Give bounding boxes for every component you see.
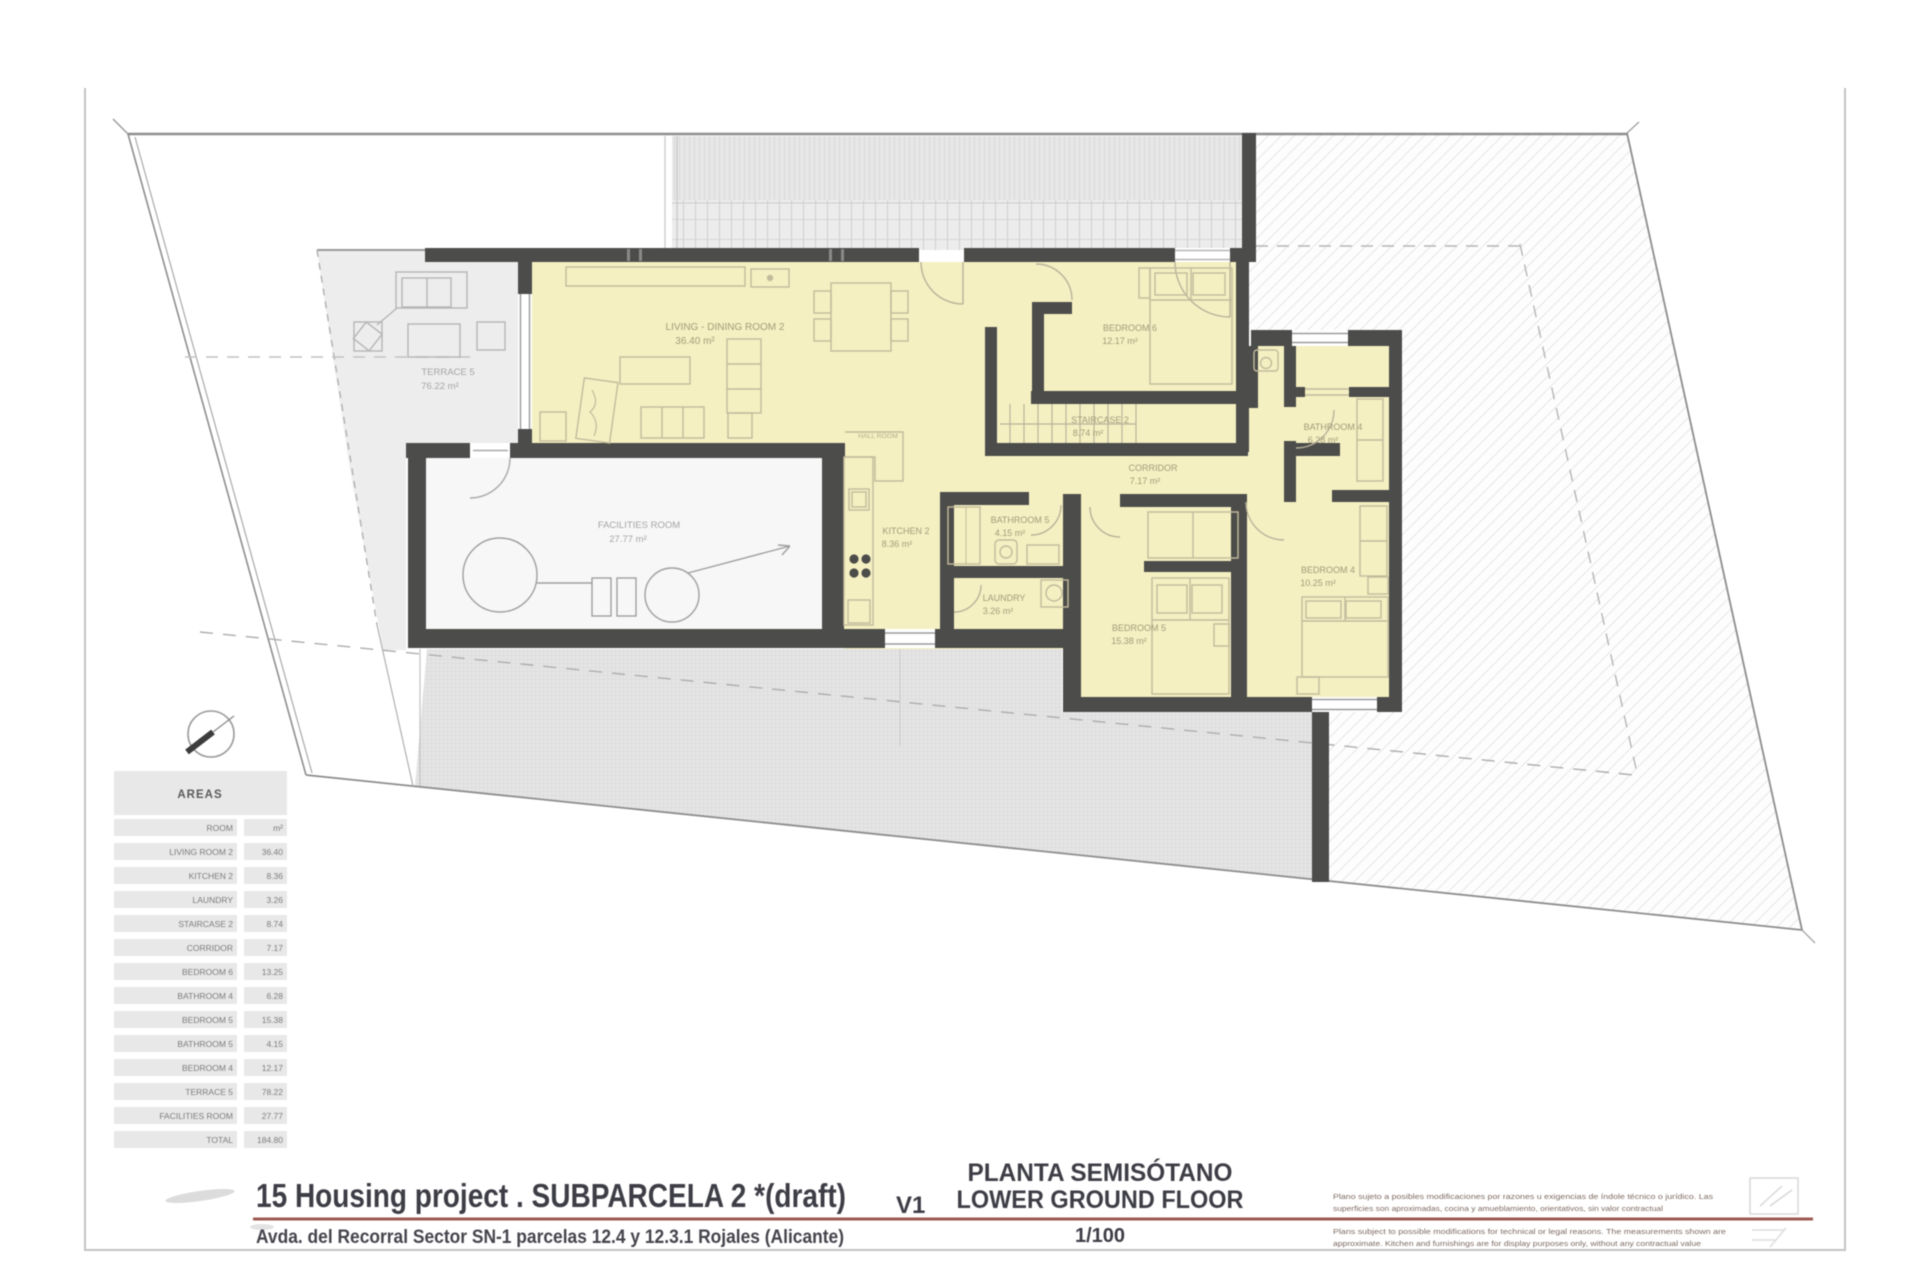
- svg-text:BATHROOM 5: BATHROOM 5: [177, 1039, 233, 1049]
- svg-text:BATHROOM 4: BATHROOM 4: [1304, 422, 1363, 432]
- svg-text:BEDROOM 5: BEDROOM 5: [182, 1015, 233, 1025]
- svg-text:approximate. Kitchen and furni: approximate. Kitchen and furnishings are…: [1333, 1239, 1701, 1248]
- svg-text:78.22: 78.22: [262, 1087, 284, 1097]
- svg-text:7.17: 7.17: [266, 943, 283, 953]
- svg-text:BEDROOM 6: BEDROOM 6: [182, 967, 233, 977]
- svg-text:KITCHEN 2: KITCHEN 2: [189, 871, 234, 881]
- svg-text:BEDROOM 4: BEDROOM 4: [1301, 565, 1355, 575]
- svg-text:8.36 m²: 8.36 m²: [882, 539, 913, 549]
- svg-text:CORRIDOR: CORRIDOR: [1129, 463, 1178, 473]
- svg-text:Avda. del Recorral Sector SN-1: Avda. del Recorral Sector SN-1 parcelas …: [256, 1227, 844, 1248]
- svg-text:36.40 m²: 36.40 m²: [675, 336, 715, 347]
- svg-text:HALL ROOM: HALL ROOM: [858, 433, 898, 440]
- svg-text:BEDROOM 5: BEDROOM 5: [1112, 623, 1166, 633]
- svg-text:12.17: 12.17: [262, 1063, 284, 1073]
- svg-text:Plans subject to possible modi: Plans subject to possible modifications …: [1333, 1227, 1726, 1236]
- svg-text:3.26: 3.26: [266, 895, 283, 905]
- svg-text:LIVING ROOM 2: LIVING ROOM 2: [169, 847, 233, 857]
- svg-text:15 Housing project . SUBPARCEL: 15 Housing project . SUBPARCELA 2 *(draf…: [256, 1177, 846, 1214]
- svg-text:13.25: 13.25: [262, 967, 284, 977]
- svg-text:AREAS: AREAS: [177, 789, 222, 801]
- svg-text:3.26 m²: 3.26 m²: [983, 606, 1014, 616]
- svg-text:8.74 m²: 8.74 m²: [1073, 428, 1104, 438]
- svg-text:184.80: 184.80: [257, 1135, 283, 1145]
- svg-text:m²: m²: [273, 823, 283, 833]
- svg-text:27.77 m²: 27.77 m²: [609, 534, 647, 545]
- svg-text:4.15: 4.15: [266, 1039, 283, 1049]
- svg-text:36.40: 36.40: [262, 847, 284, 857]
- svg-text:76.22 m²: 76.22 m²: [421, 381, 459, 392]
- svg-text:8.74: 8.74: [266, 919, 283, 929]
- svg-text:Plano sujeto a posibles modifi: Plano sujeto a posibles modificaciones p…: [1333, 1192, 1713, 1201]
- svg-text:superficies son aproximadas, c: superficies son aproximadas, cocina y am…: [1333, 1204, 1663, 1213]
- svg-text:8.36: 8.36: [266, 871, 283, 881]
- svg-text:V1: V1: [896, 1192, 925, 1219]
- svg-text:TERRACE 5: TERRACE 5: [421, 367, 474, 378]
- svg-text:15.38: 15.38: [262, 1015, 284, 1025]
- svg-text:7.17 m²: 7.17 m²: [1130, 476, 1161, 486]
- svg-text:STAIRCASE 2: STAIRCASE 2: [178, 919, 233, 929]
- svg-text:10.25 m²: 10.25 m²: [1300, 578, 1336, 588]
- svg-text:BATHROOM 4: BATHROOM 4: [177, 991, 233, 1001]
- svg-text:TERRACE 5: TERRACE 5: [185, 1087, 233, 1097]
- svg-text:TOTAL: TOTAL: [206, 1135, 233, 1145]
- svg-text:LAUNDRY: LAUNDRY: [193, 895, 234, 905]
- svg-text:BEDROOM 4: BEDROOM 4: [182, 1063, 233, 1073]
- svg-text:FACILITIES ROOM: FACILITIES ROOM: [159, 1111, 233, 1121]
- svg-text:LOWER GROUND FLOOR: LOWER GROUND FLOOR: [957, 1186, 1244, 1214]
- svg-text:6.28 m²: 6.28 m²: [1308, 435, 1339, 445]
- svg-text:12.17 m²: 12.17 m²: [1102, 336, 1138, 346]
- svg-text:PLANTA SEMISÓTANO: PLANTA SEMISÓTANO: [968, 1157, 1233, 1187]
- svg-text:4.15 m²: 4.15 m²: [995, 528, 1026, 538]
- svg-text:15.38 m²: 15.38 m²: [1111, 636, 1147, 646]
- svg-text:LIVING - DINING ROOM 2: LIVING - DINING ROOM 2: [666, 322, 785, 333]
- svg-text:1/100: 1/100: [1075, 1225, 1125, 1247]
- svg-text:BEDROOM 6: BEDROOM 6: [1103, 323, 1157, 333]
- svg-text:CORRIDOR: CORRIDOR: [187, 943, 233, 953]
- svg-text:STAIRCASE 2: STAIRCASE 2: [1071, 415, 1129, 425]
- svg-text:FACILITIES ROOM: FACILITIES ROOM: [598, 520, 680, 531]
- svg-text:27.77: 27.77: [262, 1111, 284, 1121]
- svg-text:ROOM: ROOM: [207, 823, 233, 833]
- svg-text:KITCHEN 2: KITCHEN 2: [882, 526, 929, 536]
- svg-text:BATHROOM 5: BATHROOM 5: [991, 515, 1050, 525]
- svg-text:LAUNDRY: LAUNDRY: [983, 593, 1026, 603]
- svg-text:6.28: 6.28: [266, 991, 283, 1001]
